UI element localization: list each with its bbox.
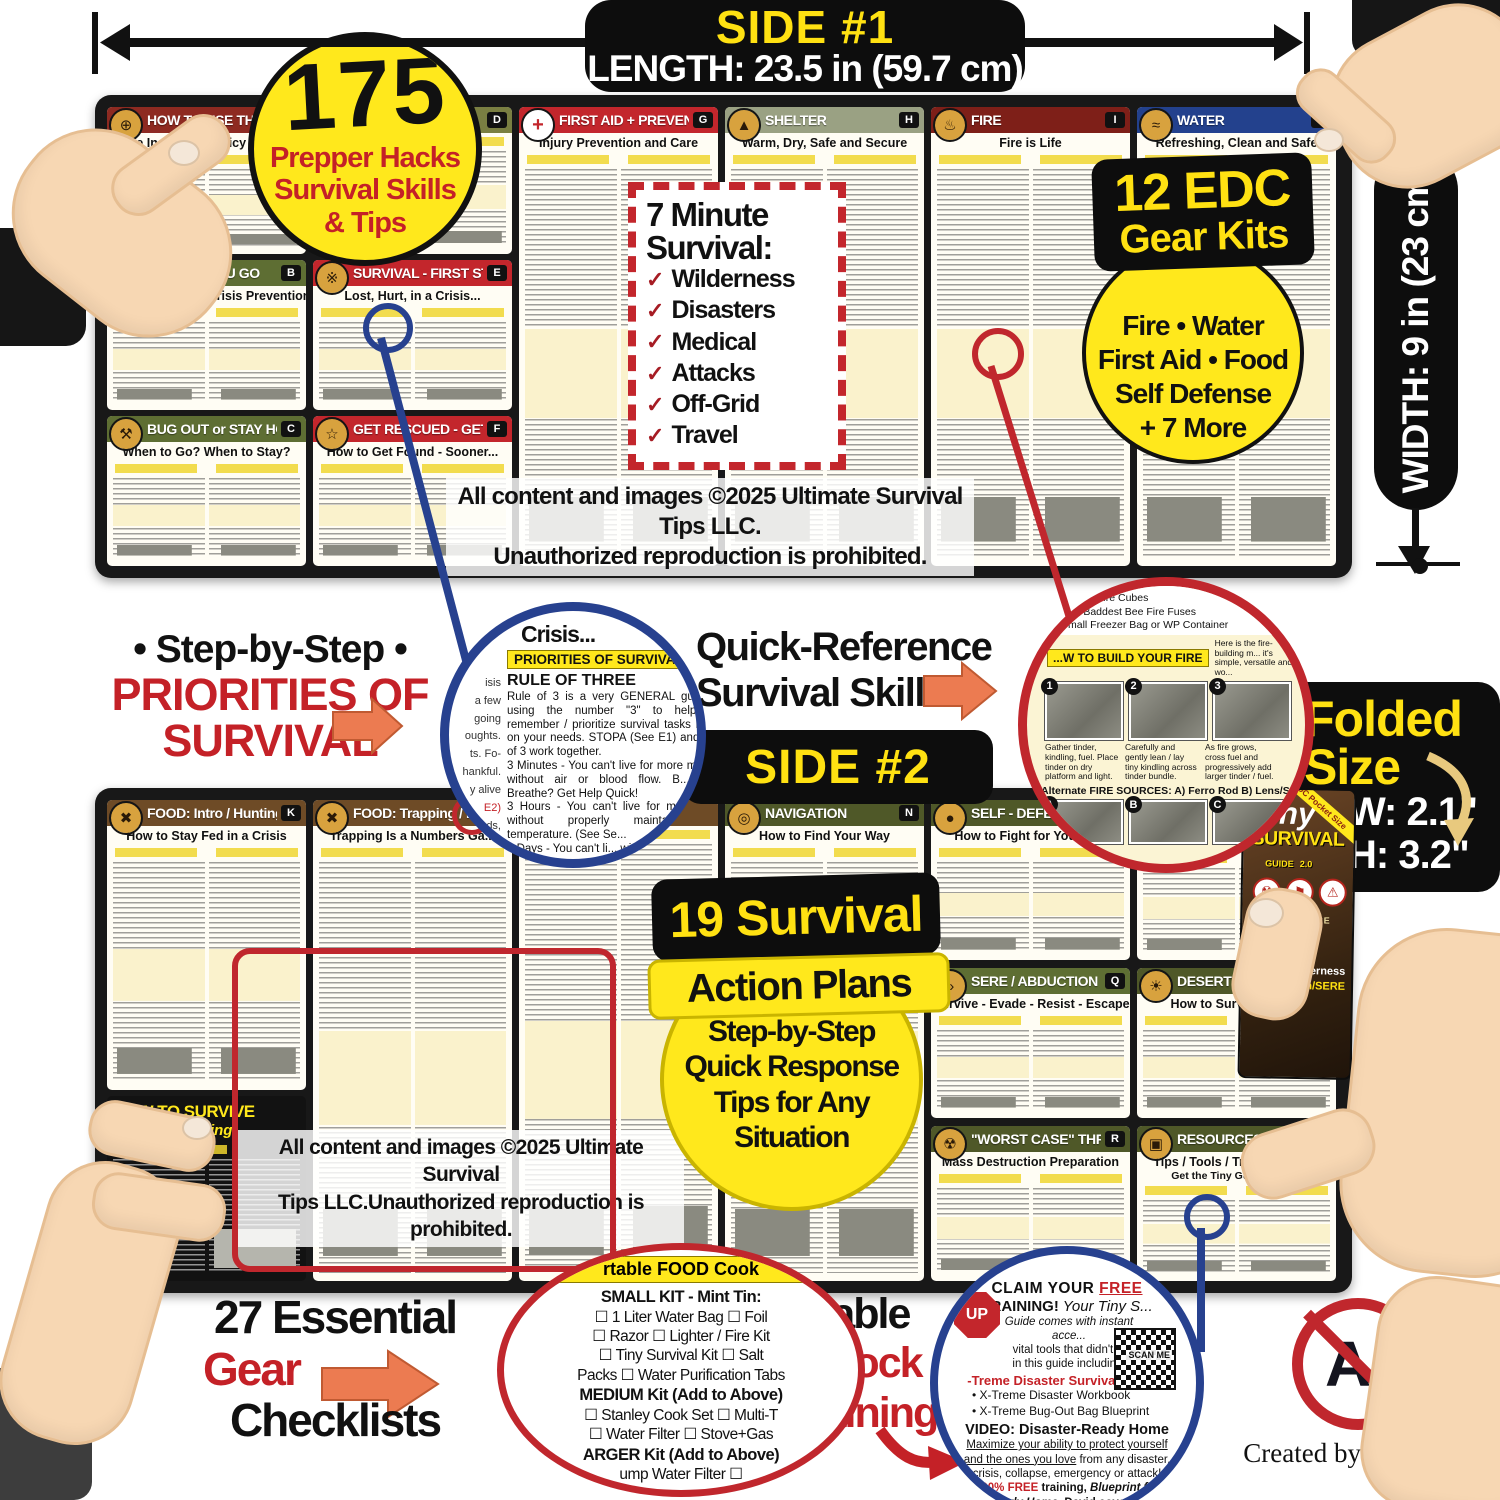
copyright-side1: All content and images ©2025 Ultimate Su… (446, 478, 974, 576)
panel-title: FIRE (971, 112, 1101, 128)
panel-letter: D (487, 112, 507, 128)
hiker-icon: ⚒ (109, 417, 143, 451)
panel-title: BUG OUT or STAY HOME (147, 421, 277, 437)
panel-letter: G (693, 112, 713, 128)
cook-list-line: ☐ 1 Liter Water Bag ☐ Foil (504, 1308, 858, 1327)
width-banner: WIDTH: 9 in (23 cm) (1374, 148, 1458, 510)
water-drop-icon: ≈ (1139, 108, 1173, 142)
panel-title: RESOURCES (1177, 1131, 1307, 1147)
cook-list-line: ☐ Water Filter ☐ Stove+Gas (504, 1425, 858, 1444)
action-plans-strip: Action Plans (647, 952, 950, 1020)
rescue-person-icon: ☆ (315, 417, 349, 451)
hack-count: 175 (252, 40, 479, 147)
food-cook-magnifier: rtable FOOD Cook SMALL KIT - Mint Tin: ☐… (497, 1243, 865, 1497)
warning-icon: ⚠ (1318, 878, 1346, 906)
tent-icon: ▲ (727, 108, 761, 142)
panel-title: SERE / ABDUCTION (971, 973, 1101, 989)
created-by-humans: Created by HUMANS (1228, 1438, 1500, 1469)
panel-sere-abduction: » SERE / ABDUCTION Q Survive - Evade - R… (931, 968, 1130, 1118)
cook-list-line: ☐ Tiny Survival Kit ☐ Salt (504, 1346, 858, 1365)
fire-source-ring (972, 328, 1024, 380)
cook-list-line: ARGER Kit (Add to Above) (504, 1445, 858, 1466)
seven-minute-survival-box: 7 Minute Survival: ✓Wilderness ✓Disaster… (628, 182, 846, 470)
flag-icon: ⚑ (109, 261, 143, 295)
alternate-fire-sources: Alternate FIRE SOURCES: A) Ferro Rod B) … (1027, 782, 1305, 797)
fire-step-caption: As fire grows, cross fuel and progressiv… (1205, 743, 1279, 782)
bundle-item: • X-Treme Bug-Out Bag Blueprint (972, 1404, 1196, 1420)
length-label: LENGTH: 23.5 in (59.7 cm) (587, 50, 1023, 89)
edc-kits-circle: Fire • Water First Aid • Food Self Defen… (1082, 242, 1304, 464)
checklist-item: Disasters (671, 295, 775, 326)
panel-bug-out-or-stay: ⚒ BUG OUT or STAY HOME C When to Go? Whe… (107, 416, 306, 566)
cook-list-line: Packs ☐ Water Purification Tabs (504, 1366, 858, 1385)
panel-filler-text (113, 308, 300, 404)
panel-title: FOOD: Intro / Hunting (147, 805, 277, 821)
length-tick-right (1304, 12, 1310, 74)
cook-list-line: ☐ Stanley Cook Set ☐ Multi-T (504, 1406, 858, 1425)
panel-letter: E (487, 265, 507, 281)
claim-source-ring (1184, 1194, 1230, 1240)
edc-title-2: Gear Kits (1119, 214, 1289, 260)
clipped-text-fragments: isisa fewgoing oughts.ts. Fo-hankful. y … (455, 675, 501, 853)
panel-title: "WORST CASE" THREATS (971, 1131, 1101, 1147)
fire-step-caption: Gather tinder, kindling, fuel. Place tin… (1045, 743, 1119, 782)
width-tick-bottom (1376, 562, 1460, 566)
rule-of-three-body: Rule of 3 is a very GENERAL guideline us… (507, 691, 706, 760)
edc-line: Self Defense (1115, 377, 1271, 411)
checklist-item: Attacks (671, 358, 754, 389)
checklist-item: Travel (671, 420, 737, 451)
check-icon: ✓ (646, 328, 663, 356)
product-image: SIDE #1 LENGTH: 23.5 in (59.7 cm) WIDTH:… (0, 0, 1500, 1500)
footprints-icon: ※ (315, 261, 349, 295)
panel-letter: B (281, 265, 301, 281)
panel-letter: T (1311, 1131, 1331, 1147)
panel-letter: N (899, 805, 919, 821)
width-label: WIDTH: 9 in (23 cm) (1395, 165, 1437, 493)
panel-letter: R (1105, 1131, 1125, 1147)
trilogy-heading: Get the Tiny Guide Trilogy (1137, 1170, 1336, 1182)
fire-step-caption: Carefully and gently lean / lay tiny kin… (1125, 743, 1199, 782)
hiker-icon: ⚑ (1285, 878, 1313, 906)
cook-list-line: SMALL KIT - Mint Tin: (504, 1287, 858, 1308)
checklist-item: Medical (671, 327, 756, 358)
panel-letter: J (1311, 112, 1331, 128)
compass-icon: ⊕ (109, 108, 143, 142)
width-arrowhead-down (1398, 546, 1430, 574)
priorities-callout-text: • Step-by-Step • PRIORITIES OF SURVIVAL (95, 628, 445, 764)
panel-filler-text (113, 464, 300, 560)
fist-icon: ● (933, 801, 967, 835)
panel-letter: H (899, 112, 919, 128)
check-icon: ✓ (646, 391, 663, 419)
badge-line: Survival Skills (254, 174, 476, 206)
badge-175-hacks: 175 Prepper Hacks Survival Skills & Tips (248, 32, 482, 266)
sun-icon: ☀ (1139, 969, 1173, 1003)
panel-title: NAVIGATION (765, 805, 895, 821)
side2-label: SIDE #2 (745, 740, 931, 795)
flame-icon: ♨ (933, 108, 967, 142)
stop-sign-icon: UP (954, 1292, 1000, 1338)
panel-filler-text (937, 848, 1124, 954)
panel-filler-text (1143, 1186, 1330, 1275)
panel-before-you-go: ⚑ BEFORE YOU GO B Preparation and Crisis… (107, 260, 306, 410)
build-your-fire-pill: ...W TO BUILD YOUR FIRE (1047, 649, 1209, 667)
side1-label: SIDE #1 (716, 4, 894, 50)
priorities-source-ring (363, 303, 413, 353)
panel-title: FIRST AID + PREVENTION (559, 112, 689, 128)
fire-steps-images: 1 2 3 (1027, 680, 1305, 740)
food-cook-outline (232, 948, 616, 1272)
bundle-item: • X-Treme Disaster Workbook (972, 1388, 1196, 1404)
panel-letter: F (487, 421, 507, 437)
crisis-heading: Crisis... (521, 621, 697, 648)
fire-kit-item: Small Freezer Bag or WP Container (1061, 619, 1293, 633)
utensils-icon: ✖ (315, 801, 349, 835)
priorities-pill: PRIORITIES OF SURVIVAL (507, 650, 706, 669)
length-line-right (1025, 38, 1277, 47)
compass-icon: ◎ (727, 801, 761, 835)
seven-minute-title: 7 Minute (646, 198, 828, 231)
utensils-icon: ✖ (109, 801, 143, 835)
panel-filler-text (937, 1016, 1124, 1112)
checklist-item: Off-Grid (671, 389, 759, 420)
side1-length-banner: SIDE #1 LENGTH: 23.5 in (59.7 cm) (585, 0, 1025, 92)
panel-resources: ▣ RESOURCES T Tips / Tools / Training / … (1137, 1126, 1336, 1281)
edc-title: 12 EDC (1113, 164, 1291, 220)
edc-line: Fire • Water (1122, 309, 1263, 343)
check-icon: ✓ (646, 360, 663, 388)
side2-banner: SIDE #2 (683, 730, 993, 804)
width-tick-dot (1412, 558, 1428, 574)
check-icon: ✓ (646, 297, 663, 325)
panel-title: SHELTER (765, 112, 895, 128)
fire-magnifier-circle: EmergencyFire Kit ...l Fire Cubes ☐ Badd… (1018, 577, 1314, 873)
scan-me-label: SCAN ME (1126, 1350, 1172, 1360)
panel-title: SURVIVAL - FIRST STEPS (353, 265, 483, 281)
panel-title: WATER (1177, 112, 1307, 128)
checklist-item: Wilderness (671, 264, 794, 295)
check-icon: ✓ (646, 422, 663, 450)
radiation-icon: ☢ (1252, 877, 1280, 905)
folded-height: H: 3.2" (1348, 834, 1500, 877)
cook-list-line: MEDIUM Kit (Add to Above) (504, 1385, 858, 1406)
radiation-icon: ☢ (933, 1127, 967, 1161)
edc-line: + 7 More (1140, 411, 1246, 445)
badge-line: & Tips (254, 207, 476, 239)
panel-letter: C (281, 421, 301, 437)
folded-width: W: 2.1" (1348, 791, 1500, 834)
edc-kits-banner: 12 EDC Gear Kits (1091, 152, 1315, 272)
length-arrowhead-left (100, 24, 130, 61)
medical-cross-icon: + (521, 108, 555, 142)
panel-survival-first-steps: ※ SURVIVAL - FIRST STEPS E Lost, Hurt, i… (313, 260, 512, 410)
length-tick-left (92, 12, 98, 74)
edc-line: First Aid • Food (1098, 343, 1288, 377)
cook-list-line: ump Water Filter ☐ (504, 1465, 858, 1484)
seven-minute-title-2: Survival: (646, 231, 828, 264)
panel-letter: Q (1105, 973, 1125, 989)
width-arrowhead-up (1398, 86, 1430, 114)
action-plans-banner: 19 Survival (651, 872, 941, 962)
length-arrowhead-right (1274, 24, 1303, 61)
width-line-top (1412, 110, 1419, 150)
panel-letter: K (281, 805, 301, 821)
gear-checklists-callout: 27 Essential Gear Checklists (185, 1292, 485, 1446)
quick-reference-callout-text: Quick-Reference Survival Skills (696, 624, 991, 716)
video-heading: VIDEO: Disaster-Ready Home (938, 1422, 1196, 1438)
panel-letter: I (1105, 112, 1125, 128)
panel-title: GET RESCUED - GET HOME (353, 421, 483, 437)
three-minutes-line: 3 Minutes - You can't live for more minu… (507, 760, 706, 801)
cook-list-line: ☐ Razor ☐ Lighter / Fire Kit (504, 1327, 858, 1346)
priorities-magnifier-circle: isisa fewgoing oughts.ts. Fo-hankful. y … (440, 602, 706, 868)
width-line-bottom (1412, 508, 1419, 550)
fire-alt-images: A B C (1027, 797, 1305, 844)
toolbox-icon: ▣ (1139, 1127, 1173, 1161)
panel-title: BEFORE YOU GO (147, 265, 277, 281)
check-icon: ✓ (646, 266, 663, 294)
no-ai-logo: AI (1292, 1298, 1424, 1430)
rule-of-three-heading: RULE OF THREE (507, 672, 697, 690)
